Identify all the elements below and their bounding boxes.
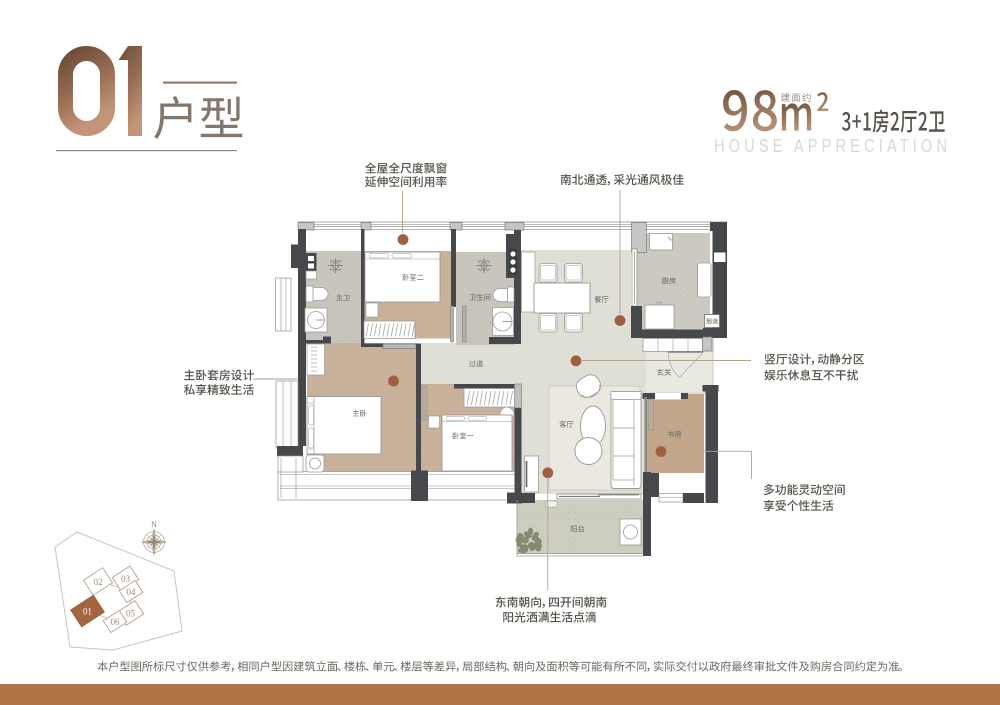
svg-text:06: 06 (111, 617, 121, 627)
svg-text:04: 04 (127, 587, 137, 597)
svg-text:02: 02 (94, 577, 103, 587)
svg-text:03: 03 (121, 574, 131, 584)
svg-text:01: 01 (83, 607, 92, 617)
svg-text:05: 05 (126, 609, 136, 619)
svg-text:N: N (151, 520, 157, 529)
svg-text:HOUSE APPRECIATION: HOUSE APPRECIATION (714, 136, 951, 156)
